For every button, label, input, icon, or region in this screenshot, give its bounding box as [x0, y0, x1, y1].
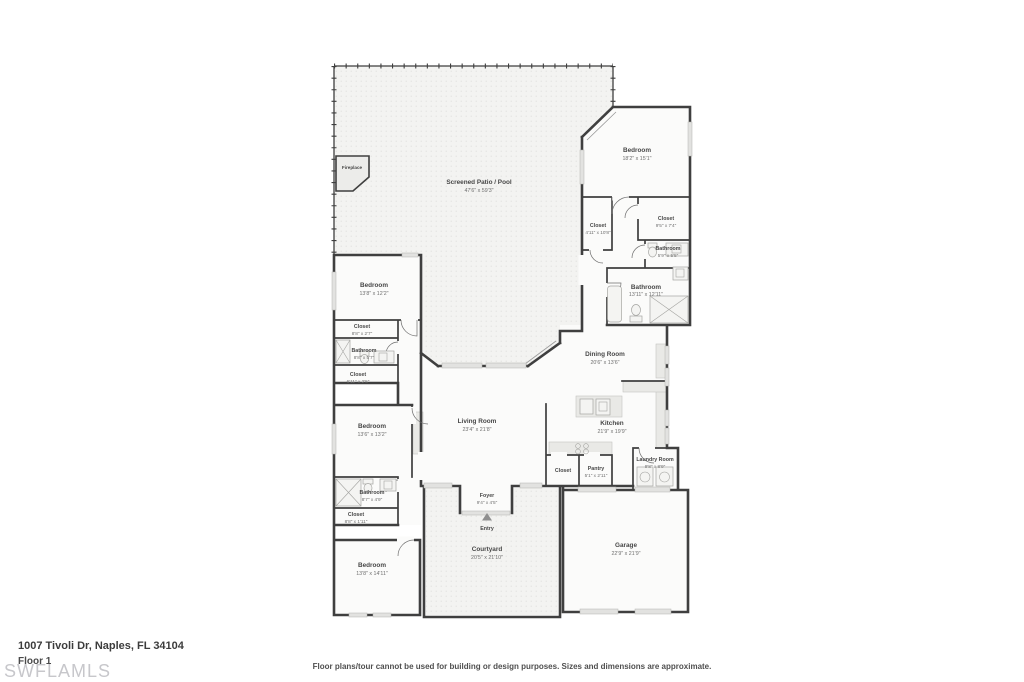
garage-door [580, 609, 618, 614]
disclaimer-text: Floor plans/tour cannot be used for buil… [162, 662, 862, 671]
room-label-entry: Entry [480, 526, 494, 532]
room-label-screened-patio: Screened Patio / Pool [446, 179, 512, 186]
svg-text:47'6" x 59'3": 47'6" x 59'3" [464, 188, 493, 194]
vanity-sink-icon [673, 267, 688, 280]
svg-text:18'2" x 15'1": 18'2" x 15'1" [622, 156, 651, 162]
svg-text:13'8" x 14'11": 13'8" x 14'11" [356, 571, 388, 577]
room-label-bathroom-small: Bathroom [655, 246, 680, 252]
room-label-closet-3: Closet [350, 372, 366, 378]
shower-icon [336, 340, 350, 363]
svg-text:13'8" x 12'2": 13'8" x 12'2" [359, 291, 388, 297]
room-label-pantry: Pantry [588, 466, 605, 472]
room-label-fireplace: Fireplace [342, 165, 363, 170]
svg-text:4'11" x 10'8": 4'11" x 10'8" [585, 230, 611, 235]
room-label-kitchen: Kitchen [600, 420, 624, 427]
room-label-bathroom-master: Bathroom [631, 284, 661, 291]
room-label-closet-2: Closet [354, 324, 370, 330]
washer-icon [637, 467, 653, 486]
svg-text:20'6" x 13'6": 20'6" x 13'6" [590, 360, 619, 366]
svg-text:8'8" x 1'11": 8'8" x 1'11" [345, 519, 368, 524]
svg-text:5'1" x 2'11": 5'1" x 2'11" [585, 473, 608, 478]
svg-text:8'8" x 2'7": 8'8" x 2'7" [352, 331, 373, 336]
room-label-closet-master-right: Closet [658, 216, 674, 222]
room-label-bathroom-3: Bathroom [359, 490, 384, 496]
room-label-closet-4: Closet [348, 512, 364, 518]
room-label-bedroom-3: Bedroom [358, 423, 386, 430]
svg-text:9'4" x 4'5": 9'4" x 4'5" [477, 500, 498, 505]
bathtub-icon [608, 286, 622, 322]
svg-text:8'7" x 4'9": 8'7" x 4'9" [362, 497, 383, 502]
svg-text:9'8" x 8'9": 9'8" x 8'9" [645, 464, 666, 469]
svg-text:8'8" x 5'7": 8'8" x 5'7" [354, 355, 375, 360]
room-label-dining-room: Dining Room [585, 351, 625, 358]
room-label-closet-kitchen: Closet [555, 468, 571, 474]
svg-text:20'5" x 21'10": 20'5" x 21'10" [471, 555, 503, 561]
room-label-living-room: Living Room [458, 418, 497, 425]
entry-door-sill [462, 511, 510, 515]
room-label-foyer: Foyer [480, 493, 494, 499]
svg-text:13'6" x 13'2": 13'6" x 13'2" [357, 432, 386, 438]
svg-text:9'5" x 7'4": 9'5" x 7'4" [656, 223, 677, 228]
room-label-bedroom-4: Bedroom [358, 562, 386, 569]
room-label-bathroom-2: Bathroom [351, 348, 376, 354]
svg-text:21'9" x 19'9": 21'9" x 19'9" [597, 429, 626, 435]
shower-icon [336, 479, 361, 506]
property-address: 1007 Tivoli Dr, Naples, FL 34104 [18, 640, 184, 652]
mls-watermark: SWFLAMLS [4, 661, 111, 682]
room-label-garage: Garage [615, 542, 637, 549]
vanity-sink-icon [374, 351, 394, 363]
floorplan-drawing: Screened Patio / Pool 47'6" x 59'3" Fire… [0, 0, 1024, 682]
room-label-closet-master-left: Closet [590, 223, 606, 229]
shower-icon [650, 296, 688, 323]
room-label-bedroom-master: Bedroom [623, 147, 651, 154]
svg-text:5'9" x 5'5": 5'9" x 5'5" [658, 253, 679, 258]
floorplan-page: Screened Patio / Pool 47'6" x 59'3" Fire… [0, 0, 1024, 682]
dryer-icon [656, 467, 673, 486]
garage-door [635, 609, 671, 614]
svg-text:22'9" x 21'9": 22'9" x 21'9" [611, 551, 640, 557]
svg-text:23'4" x 21'8": 23'4" x 21'8" [462, 427, 491, 433]
svg-text:13'11" x 12'11": 13'11" x 12'11" [629, 292, 663, 298]
svg-text:6'11" x 2'5": 6'11" x 2'5" [347, 379, 370, 384]
room-label-laundry-room: Laundry Room [636, 457, 674, 463]
room-label-courtyard: Courtyard [472, 546, 503, 553]
room-label-bedroom-2: Bedroom [360, 282, 388, 289]
